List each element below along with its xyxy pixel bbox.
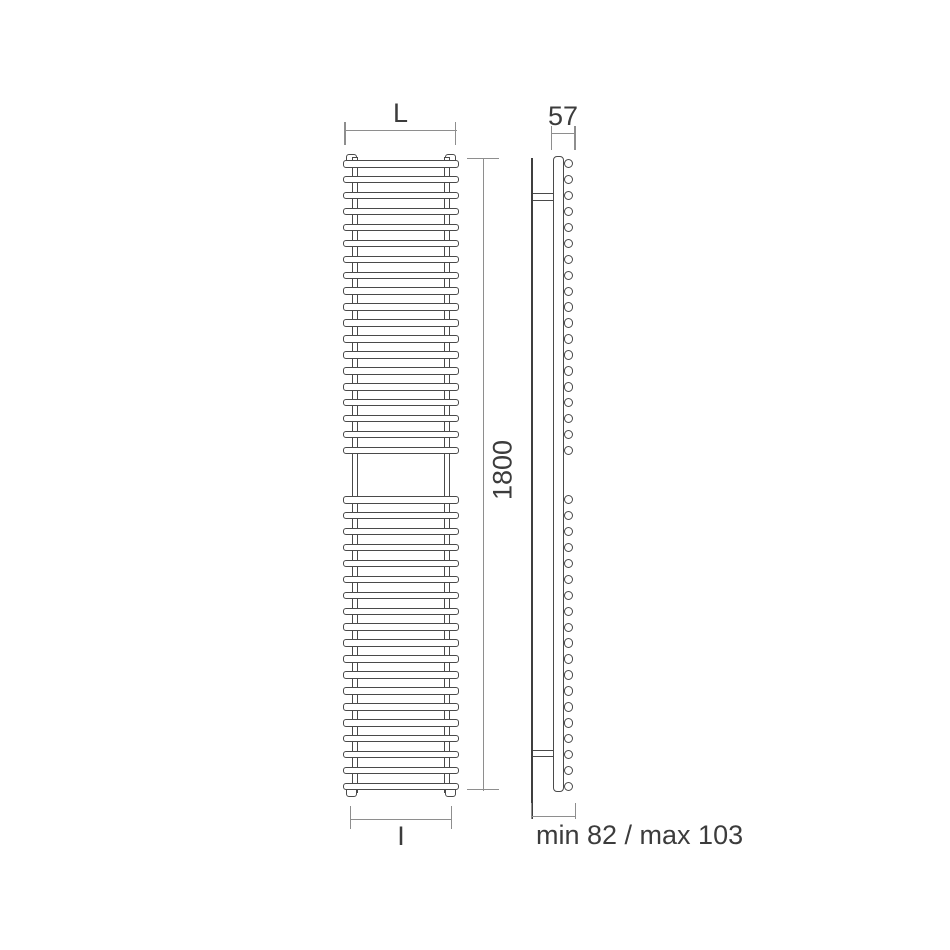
towel-bar — [343, 671, 459, 679]
tube-end-circle — [564, 366, 573, 375]
tube-end-circle — [564, 302, 573, 311]
tube-end-circle — [564, 686, 573, 695]
tube-end-circle — [564, 638, 573, 647]
tube-end-circle — [564, 654, 573, 663]
towel-bar — [343, 303, 459, 311]
tube-end-circle — [564, 175, 573, 184]
tube-end-circle — [564, 559, 573, 568]
dimension-depth-line — [552, 133, 576, 134]
tube-end-circle — [564, 159, 573, 168]
towel-bar — [343, 160, 459, 168]
towel-bar — [343, 256, 459, 264]
tube-end-circle — [564, 718, 573, 727]
tube-end-circle — [564, 782, 573, 791]
towel-bar — [343, 399, 459, 407]
towel-bar — [343, 367, 459, 375]
dimension-height-tick-bottom — [467, 789, 499, 790]
towel-bar — [343, 655, 459, 663]
towel-bar — [343, 735, 459, 743]
dimension-width-line — [345, 130, 457, 131]
tube-end-circle — [564, 495, 573, 504]
tube-end-circle — [564, 527, 573, 536]
tube-end-circle — [564, 334, 573, 343]
tube-end-circle — [564, 287, 573, 296]
dimension-width-label: L — [345, 100, 456, 127]
tube-end-circle — [564, 591, 573, 600]
tube-end-circle — [564, 191, 573, 200]
tube-end-circle — [564, 350, 573, 359]
tube-end-circle — [564, 702, 573, 711]
dimension-interaxis-label: I — [350, 823, 452, 850]
towel-bar — [343, 592, 459, 600]
dimension-height-tick-top — [467, 158, 499, 159]
towel-bar — [343, 224, 459, 232]
towel-bar — [343, 287, 459, 295]
mounting-bracket-top — [533, 193, 554, 201]
tube-end-circle — [564, 543, 573, 552]
tube-end-circle — [564, 446, 573, 455]
dimension-height-label: 1800 — [490, 440, 517, 500]
towel-bar — [343, 560, 459, 568]
towel-bar — [343, 751, 459, 759]
towel-bar — [343, 447, 459, 455]
tube-end-circle — [564, 207, 573, 216]
towel-bar — [343, 240, 459, 248]
towel-bar — [343, 192, 459, 200]
tube-end-circle — [564, 734, 573, 743]
collector-tube-left — [352, 157, 358, 793]
dimension-depth-label: 57 — [537, 103, 589, 130]
tube-end-circle — [564, 398, 573, 407]
tube-end-circle — [564, 607, 573, 616]
towel-bar — [343, 415, 459, 423]
towel-bar — [343, 528, 459, 536]
towel-bar — [343, 351, 459, 359]
dimension-wall-distance-line — [531, 816, 576, 817]
towel-bar — [343, 703, 459, 711]
tube-end-circle — [564, 255, 573, 264]
towel-bar — [343, 431, 459, 439]
towel-bar — [343, 608, 459, 616]
tube-end-circle — [564, 271, 573, 280]
towel-bar — [343, 623, 459, 631]
collector-bottom-cap-right — [445, 789, 457, 797]
towel-bar — [343, 783, 459, 791]
tube-end-circle — [564, 766, 573, 775]
towel-bar — [343, 576, 459, 584]
towel-bar — [343, 335, 459, 343]
tube-end-circle — [564, 414, 573, 423]
towel-bar — [343, 319, 459, 327]
tube-end-circle — [564, 430, 573, 439]
dimension-wall-distance-tick-right — [575, 803, 576, 819]
towel-bar — [343, 272, 459, 280]
radiator-technical-drawing: L 1800 I 57 min 82 / max 103 — [0, 0, 950, 950]
dimension-height-line — [483, 159, 484, 791]
tube-end-circle — [564, 318, 573, 327]
tube-end-circle — [564, 750, 573, 759]
towel-bar — [343, 639, 459, 647]
towel-bar — [343, 767, 459, 775]
panel-profile — [553, 156, 564, 792]
collector-tube-right — [444, 157, 450, 793]
towel-bar — [343, 687, 459, 695]
towel-bar — [343, 719, 459, 727]
wall-line — [531, 158, 533, 819]
tube-end-circle — [564, 223, 573, 232]
towel-bar — [343, 544, 459, 552]
towel-bar — [343, 512, 459, 520]
dimension-interaxis-line — [350, 819, 452, 820]
towel-bar — [343, 383, 459, 391]
towel-bar — [343, 208, 459, 216]
dimension-wall-distance-label: min 82 / max 103 — [536, 822, 743, 849]
collector-bottom-cap-left — [346, 789, 358, 797]
tube-end-circle — [564, 575, 573, 584]
tube-end-circle — [564, 623, 573, 632]
dimension-wall-distance-tick-left — [531, 803, 532, 819]
tube-end-circle — [564, 382, 573, 391]
tube-end-circle — [564, 670, 573, 679]
tube-end-circle — [564, 511, 573, 520]
towel-bar — [343, 176, 459, 184]
towel-bar — [343, 496, 459, 504]
tube-end-circle — [564, 239, 573, 248]
mounting-bracket-bottom — [533, 750, 554, 758]
